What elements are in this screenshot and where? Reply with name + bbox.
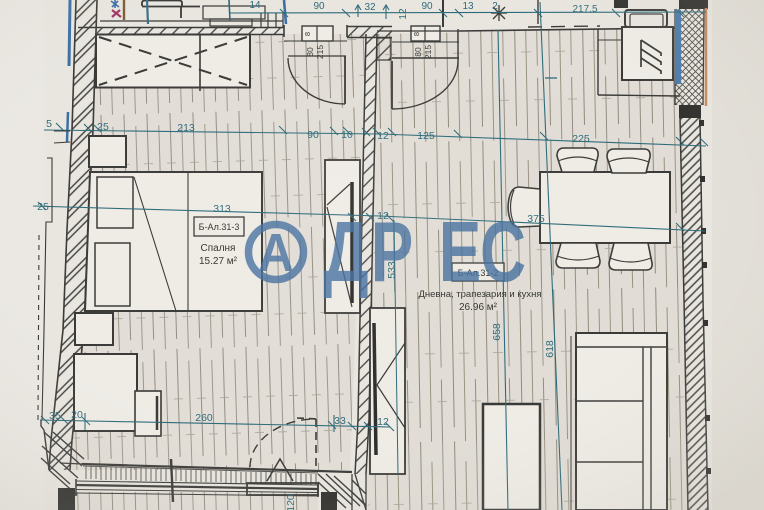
svg-text:Д: Д bbox=[323, 204, 368, 299]
svg-text:А: А bbox=[258, 222, 294, 282]
svg-text:35: 35 bbox=[49, 410, 61, 422]
svg-text:12: 12 bbox=[377, 130, 389, 142]
svg-text:618: 618 bbox=[544, 340, 556, 358]
svg-text:2: 2 bbox=[492, 1, 498, 12]
svg-text:260: 260 bbox=[195, 412, 213, 424]
svg-text:20: 20 bbox=[71, 409, 83, 421]
svg-text:5: 5 bbox=[46, 118, 52, 130]
svg-text:213: 213 bbox=[177, 122, 195, 134]
svg-text:215: 215 bbox=[315, 45, 325, 59]
svg-text:80: 80 bbox=[413, 47, 423, 57]
svg-text:14: 14 bbox=[249, 0, 261, 11]
svg-text:32: 32 bbox=[364, 2, 376, 13]
svg-text:26.96 м²: 26.96 м² bbox=[459, 302, 498, 313]
svg-text:375: 375 bbox=[527, 213, 545, 225]
svg-text:80: 80 bbox=[305, 47, 315, 57]
svg-text:Спалня: Спалня bbox=[201, 243, 236, 254]
svg-text:8: 8 bbox=[303, 32, 312, 36]
svg-text:313: 313 bbox=[213, 203, 231, 215]
svg-text:90: 90 bbox=[313, 1, 325, 12]
svg-text:Е: Е bbox=[439, 204, 482, 299]
svg-text:Б-Ал.31-3: Б-Ал.31-3 bbox=[199, 222, 240, 232]
svg-text:13: 13 bbox=[462, 1, 474, 12]
svg-text:25: 25 bbox=[37, 201, 49, 213]
svg-text:10: 10 bbox=[341, 129, 353, 141]
svg-text:120: 120 bbox=[285, 494, 297, 510]
svg-text:12: 12 bbox=[398, 8, 409, 20]
svg-text:90: 90 bbox=[307, 129, 319, 141]
svg-text:8: 8 bbox=[412, 32, 421, 36]
svg-text:658: 658 bbox=[491, 323, 503, 341]
svg-text:33: 33 bbox=[334, 415, 346, 427]
svg-text:Р: Р bbox=[371, 204, 414, 299]
svg-text:15.27 м²: 15.27 м² bbox=[199, 256, 238, 267]
svg-text:125: 125 bbox=[417, 130, 435, 142]
svg-text:С: С bbox=[480, 204, 526, 299]
svg-text:25: 25 bbox=[97, 121, 109, 133]
svg-text:90: 90 bbox=[421, 1, 433, 12]
svg-text:12: 12 bbox=[377, 416, 389, 428]
svg-text:217.5: 217.5 bbox=[572, 4, 597, 15]
svg-text:215: 215 bbox=[423, 45, 433, 59]
svg-text:225: 225 bbox=[572, 133, 590, 145]
